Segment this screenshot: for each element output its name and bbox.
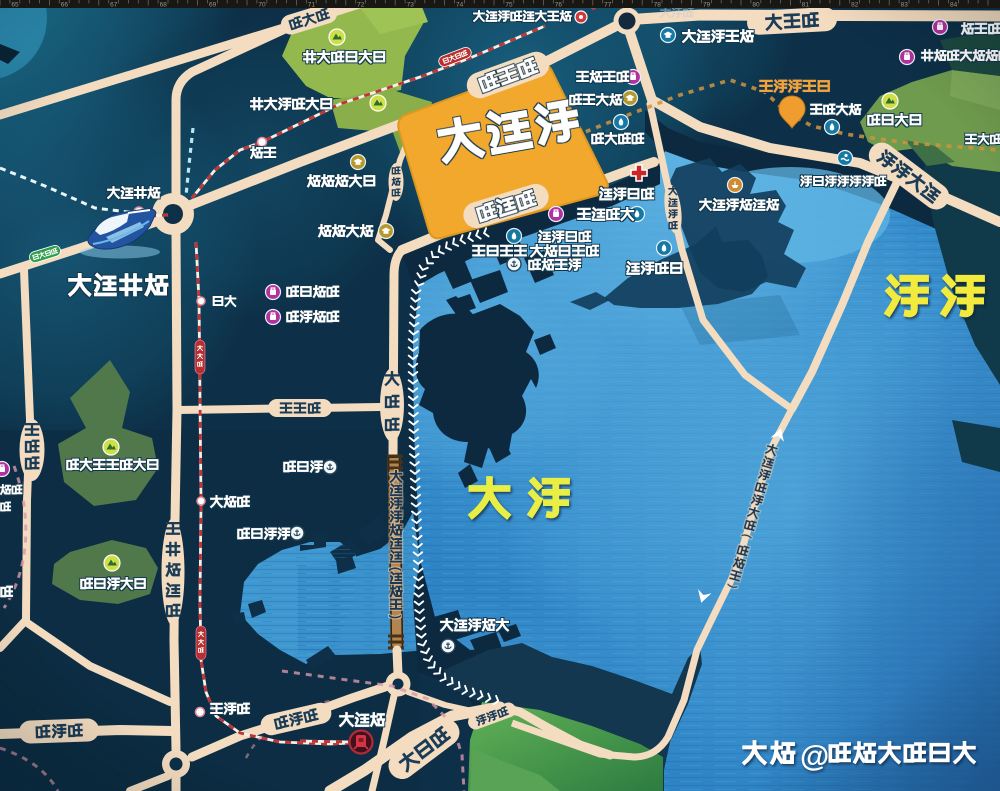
svg-text:65: 65 (11, 1, 19, 8)
svg-text:81: 81 (802, 1, 810, 8)
svg-text:80: 80 (752, 1, 760, 8)
svg-text:82: 82 (851, 1, 859, 8)
svg-text:72: 72 (357, 1, 365, 8)
svg-text:74: 74 (456, 1, 464, 8)
svg-text:71: 71 (308, 1, 316, 8)
svg-text:68: 68 (160, 1, 168, 8)
svg-text:67: 67 (110, 1, 118, 8)
svg-text:78: 78 (654, 1, 662, 8)
svg-text:75: 75 (505, 1, 513, 8)
svg-text:77: 77 (604, 1, 612, 8)
svg-text:83: 83 (901, 1, 909, 8)
svg-text:69: 69 (209, 1, 217, 8)
svg-text:84: 84 (950, 1, 958, 8)
svg-text:79: 79 (703, 1, 711, 8)
svg-text:70: 70 (258, 1, 266, 8)
svg-text:73: 73 (407, 1, 415, 8)
svg-text:): ) (388, 615, 403, 619)
svg-text:76: 76 (555, 1, 563, 8)
svg-text:66: 66 (61, 1, 69, 8)
svg-text:(: ( (388, 567, 403, 572)
svg-text:@: @ (800, 740, 829, 773)
